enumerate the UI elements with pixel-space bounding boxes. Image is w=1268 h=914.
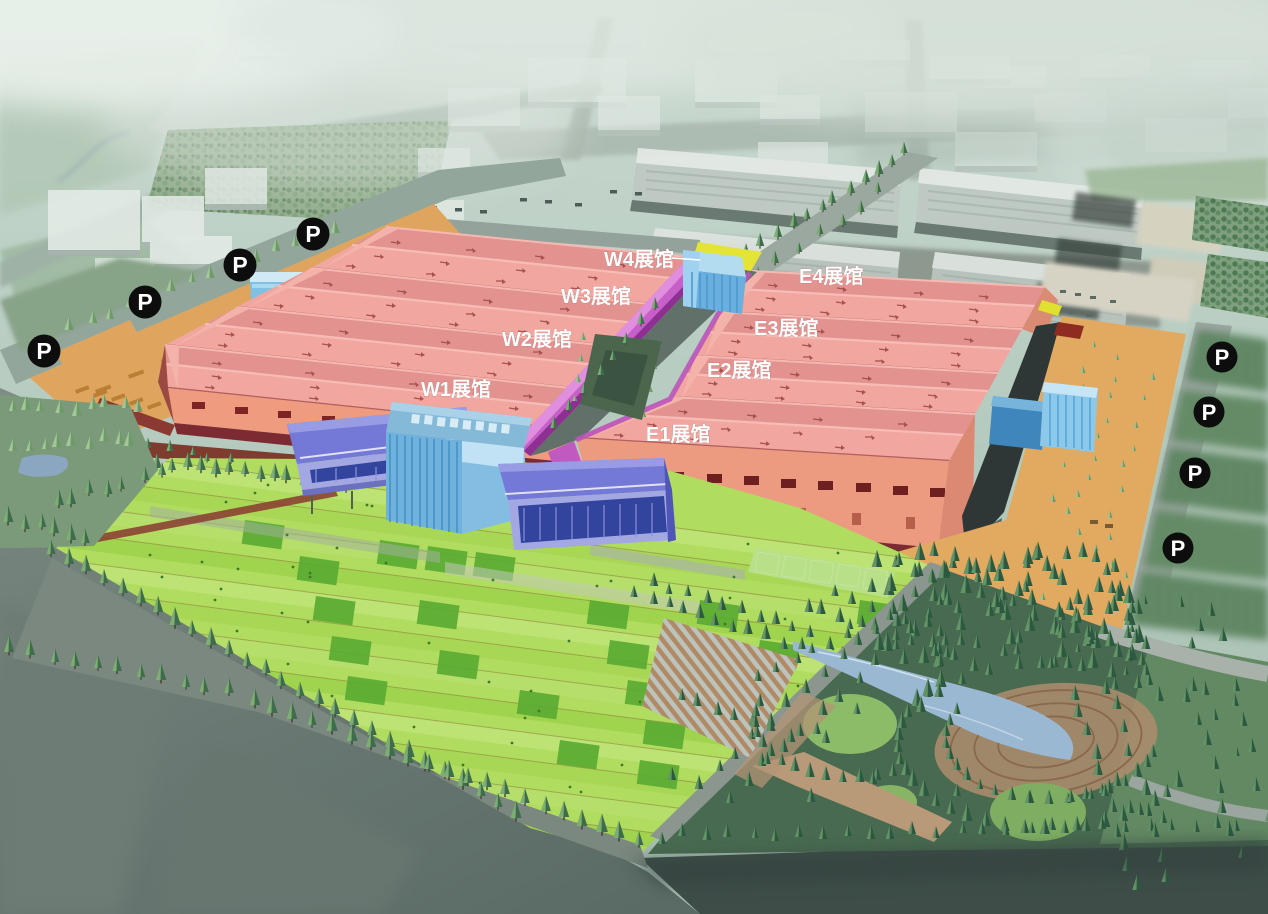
svg-text:P: P [36, 338, 51, 364]
svg-text:P: P [1215, 345, 1230, 370]
svg-text:P: P [1188, 461, 1203, 486]
svg-text:E4展馆: E4展馆 [799, 264, 863, 288]
svg-text:P: P [232, 252, 247, 278]
svg-text:P: P [137, 289, 152, 315]
svg-text:E2展馆: E2展馆 [707, 358, 771, 382]
svg-text:W3展馆: W3展馆 [561, 284, 631, 308]
svg-text:E3展馆: E3展馆 [754, 316, 818, 340]
svg-text:P: P [305, 221, 320, 247]
svg-text:E1展馆: E1展馆 [646, 422, 710, 446]
svg-text:P: P [1171, 536, 1186, 561]
svg-text:W1展馆: W1展馆 [421, 377, 491, 401]
svg-text:W4展馆: W4展馆 [604, 247, 674, 271]
svg-text:P: P [1202, 400, 1217, 425]
svg-text:W2展馆: W2展馆 [502, 327, 572, 351]
